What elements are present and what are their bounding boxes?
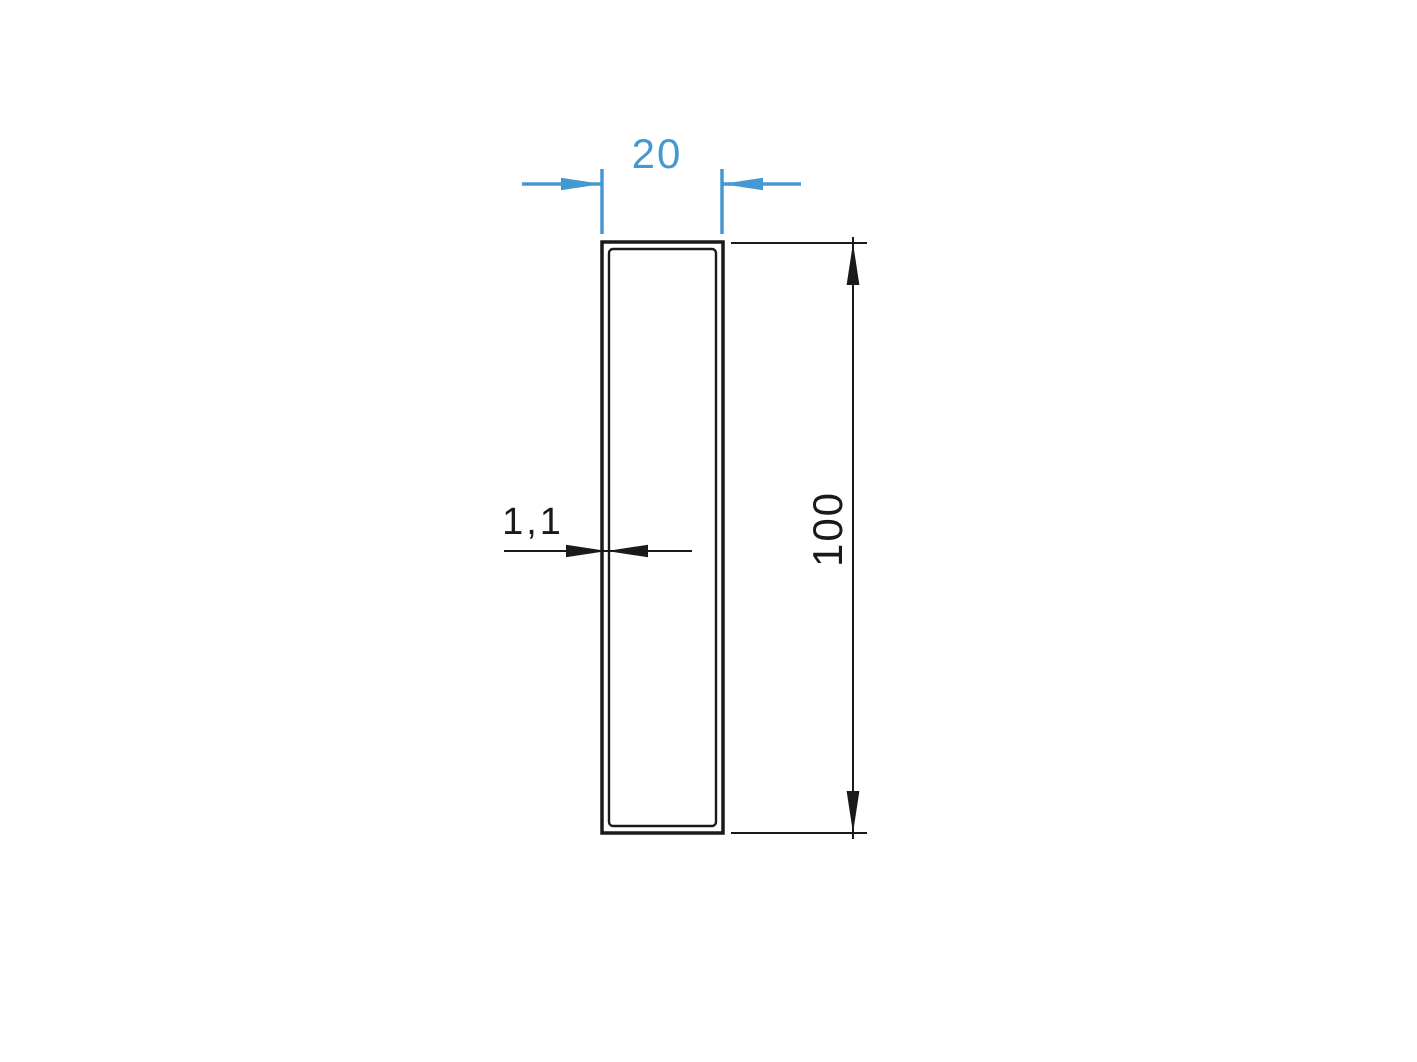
- profile-drawing: 20 1,1 100: [0, 0, 1417, 1062]
- width-dimension: 20: [522, 130, 801, 234]
- width-dimension-label: 20: [632, 130, 683, 177]
- thickness-dimension: 1,1: [502, 501, 692, 557]
- height-arrowhead-top-icon: [847, 243, 860, 285]
- height-arrowhead-bottom-icon: [847, 791, 860, 833]
- tube-profile: [602, 242, 723, 833]
- drawing-canvas: 20 1,1 100: [0, 0, 1417, 1062]
- width-arrowhead-left-icon: [561, 178, 602, 190]
- profile-outer-rect: [602, 242, 723, 833]
- height-dimension-label: 100: [804, 491, 851, 567]
- height-dimension: 100: [731, 237, 867, 839]
- thickness-dimension-label: 1,1: [502, 501, 564, 543]
- profile-inner-rect: [609, 249, 716, 826]
- thickness-arrowhead-right-icon: [607, 545, 648, 558]
- width-arrowhead-right-icon: [722, 178, 763, 190]
